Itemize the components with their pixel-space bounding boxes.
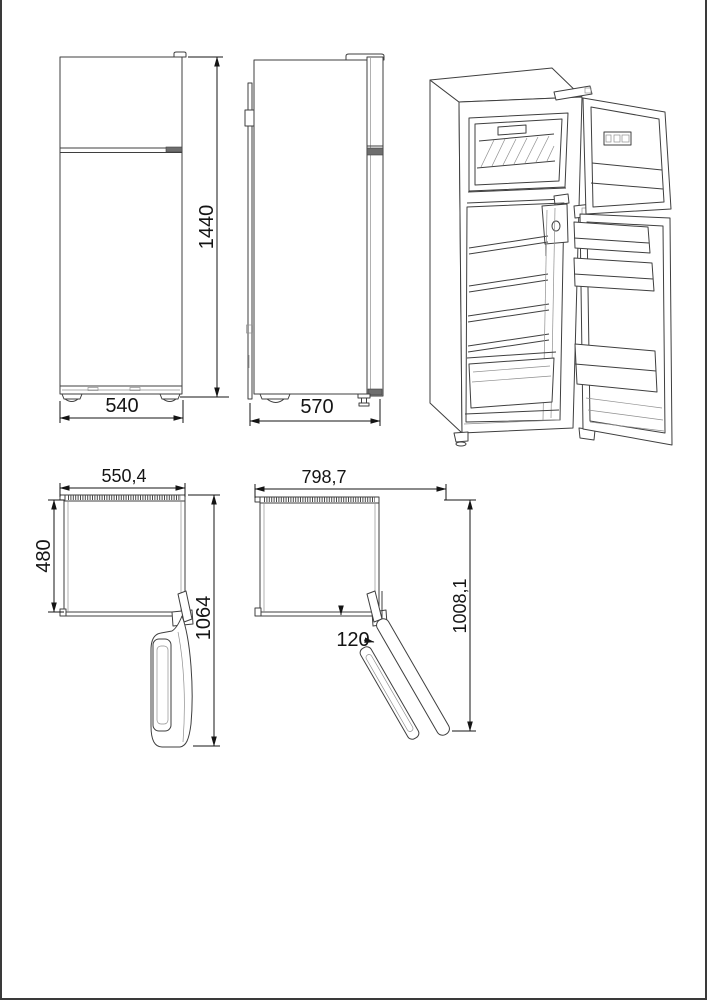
door-profile (367, 57, 383, 396)
cabinet-plan (260, 497, 379, 616)
upper-hinge-bracket (245, 110, 254, 126)
front-height-dimension: 1440 (196, 205, 218, 250)
cabinet-outline (254, 60, 367, 394)
right-foot (160, 394, 180, 399)
left-foot (62, 394, 82, 399)
cabinet-outline (60, 57, 182, 394)
rating-label (604, 132, 631, 145)
door-gasket-slab (358, 645, 420, 741)
perspective-view (430, 68, 672, 446)
top90-cabinet-depth-dimension: 480 (33, 539, 55, 572)
rear-foot-stem (362, 398, 367, 403)
cabinet-plan (64, 495, 185, 616)
top90-total-depth-dimension: 1064 (193, 596, 215, 641)
top-hinge-cover (174, 52, 186, 57)
front-view: 1440 540 (60, 52, 229, 423)
dimension-drawing-page: 1440 540 570 (0, 0, 707, 1000)
left-foot-roller (65, 399, 78, 402)
top-view-door-120: 120 798,7 1008,1 (255, 467, 476, 741)
door-divider-seal (367, 148, 383, 155)
front-foot (267, 399, 284, 403)
top90-width-dimension: 550,4 (101, 466, 146, 486)
right-foot-roller (163, 399, 176, 402)
top-view-door-90: 550,4 480 1064 (33, 466, 220, 747)
back-panel (248, 83, 252, 399)
rear-foot-plate (358, 394, 370, 398)
side-depth-dimension: 570 (300, 396, 333, 418)
front-width-dimension: 540 (105, 395, 138, 417)
door-handle-recess (166, 147, 182, 152)
door-bin-top (574, 222, 650, 253)
top-left-tab (255, 497, 260, 502)
top-left-tab (60, 495, 65, 500)
crisper-drawer (469, 358, 554, 408)
front-left-roller (456, 442, 466, 446)
front-foot-plate (260, 394, 290, 399)
refrigerator-dimension-drawing: 1440 540 570 (2, 0, 707, 1000)
front-left-foot (454, 432, 468, 442)
side-view: 570 (245, 54, 384, 426)
bottom-left-foot (255, 608, 261, 616)
cabinet-left-side (430, 80, 462, 433)
rear-foot-base (359, 403, 369, 406)
top120-total-depth-dimension: 1008,1 (450, 578, 470, 633)
top120-width-dimension: 798,7 (301, 467, 346, 487)
freezer-door (583, 98, 671, 214)
